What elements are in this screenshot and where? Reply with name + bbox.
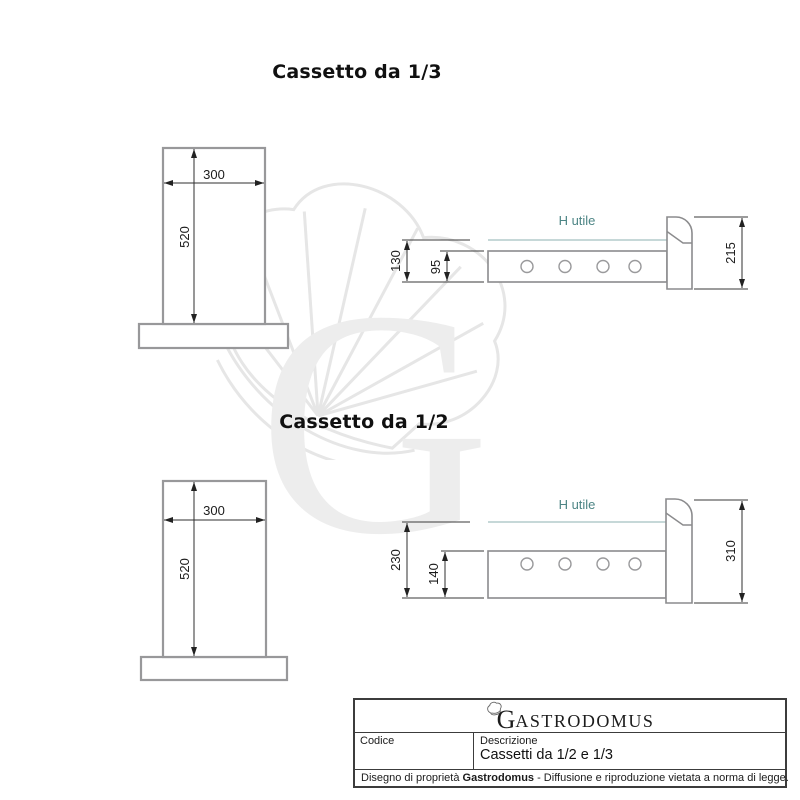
technical-drawing-linework <box>0 0 800 800</box>
dim-total-height-12: 230 <box>389 540 403 580</box>
h-utile-label-12: H utile <box>537 497 617 512</box>
logo-initial: G <box>497 709 516 731</box>
codice-label: Codice <box>360 735 394 747</box>
section-title-drawer-13: Cassetto da 1/3 <box>272 61 442 83</box>
codice-cell: Codice <box>355 733 474 769</box>
disclaimer-brand: Gastrodomus <box>463 772 535 784</box>
drawer-front-panel <box>666 499 692 603</box>
disclaimer-text: Disegno di proprietà Gastrodomus - Diffu… <box>361 772 789 784</box>
dim-width-12: 300 <box>194 504 234 518</box>
drawer-front-panel <box>667 217 692 289</box>
dim-inner-height-13: 95 <box>429 247 443 287</box>
logo-row: GASTRODOMUS <box>355 700 785 732</box>
dim-front-height-12: 310 <box>724 531 738 571</box>
drawer-base <box>141 657 287 680</box>
descrizione-cell: Descrizione Cassetti da 1/2 e 1/3 <box>474 733 785 769</box>
descrizione-label: Descrizione <box>480 735 785 747</box>
code-description-row: Codice Descrizione Cassetti da 1/2 e 1/3 <box>355 732 785 769</box>
dim-total-height-13: 130 <box>389 241 403 281</box>
dim-height-12: 520 <box>178 549 192 589</box>
drawer-base <box>139 324 288 348</box>
dim-front-height-13: 215 <box>724 233 738 273</box>
disclaimer-row: Disegno di proprietà Gastrodomus - Diffu… <box>355 769 785 786</box>
logo-text: ASTRODOMUS <box>515 712 654 731</box>
h-utile-label-13: H utile <box>537 213 617 228</box>
title-block: GASTRODOMUS Codice Descrizione Cassetti … <box>353 698 787 788</box>
section-title-drawer-12: Cassetto da 1/2 <box>279 411 449 433</box>
drawer-12-side-view <box>402 499 748 603</box>
disclaimer-prefix: Disegno di proprietà <box>361 772 463 784</box>
descrizione-value: Cassetti da 1/2 e 1/3 <box>480 747 785 763</box>
disclaimer-suffix: - Diffusione e riproduzione vietata a no… <box>534 772 789 784</box>
dim-width-13: 300 <box>194 168 234 182</box>
dim-height-13: 520 <box>178 217 192 257</box>
gastrodomus-logo: GASTRODOMUS <box>486 701 655 731</box>
dim-inner-height-12: 140 <box>427 554 441 594</box>
drawing-sheet: G <box>0 0 800 800</box>
drawer-rail <box>488 551 666 598</box>
